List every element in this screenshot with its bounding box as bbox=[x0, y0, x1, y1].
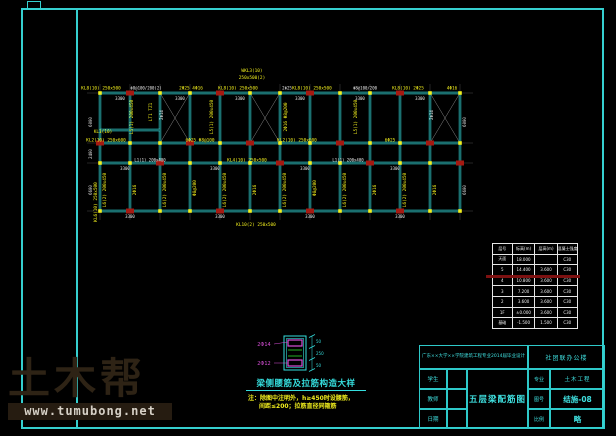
floor-table-cell: 1F bbox=[493, 307, 513, 318]
joint-node bbox=[98, 161, 102, 165]
detail-title: 梁侧腰筋及拉筋构造大样 bbox=[246, 377, 366, 391]
dimension-text: 6600 bbox=[88, 185, 93, 195]
floor-table-cell: 7.200 bbox=[512, 286, 535, 297]
beam-label: L6(2) 200x450 bbox=[162, 172, 168, 207]
beam-label: KL8(10) 2Φ25 bbox=[392, 86, 424, 92]
teacher-value-cell bbox=[447, 389, 467, 409]
floor-table-cell: 1.500 bbox=[535, 318, 557, 329]
column-marker bbox=[276, 161, 284, 166]
joint-node bbox=[368, 91, 372, 95]
dimension-text: 3300 bbox=[305, 214, 315, 219]
beam-label: 2Φ25 4Φ16 bbox=[179, 86, 203, 92]
sheet-number-value: 结施-08 bbox=[550, 389, 605, 409]
beam-label: 4Φ16 bbox=[447, 86, 458, 92]
floor-table-cell: C30 bbox=[557, 307, 577, 318]
bottom-rebar-label: 2Φ12 bbox=[257, 361, 270, 367]
joint-node bbox=[368, 141, 372, 145]
joint-node bbox=[428, 161, 432, 165]
dimension-text: 3300 bbox=[175, 96, 185, 101]
beam-label: LT1 TZ1 bbox=[148, 102, 154, 121]
date-value-cell bbox=[447, 409, 467, 429]
building-name: 社团联办公楼 bbox=[528, 345, 605, 369]
bottom-rebar bbox=[288, 360, 302, 366]
dimension-text: 2Φ25 bbox=[282, 86, 292, 91]
project-name: 广东××大学××学院建筑工程专业2014届毕业设计 bbox=[419, 345, 528, 369]
beam-label: L6(2) 200x450 bbox=[342, 172, 348, 207]
joint-node bbox=[458, 141, 462, 145]
floor-table-cell: 3.600 bbox=[535, 265, 557, 276]
scale-value: 略 bbox=[550, 409, 605, 429]
floor-table-cell: C30 bbox=[557, 254, 577, 265]
top-rebar-label: 2Φ14 bbox=[257, 342, 270, 348]
top-rebar bbox=[288, 340, 302, 346]
major-label: 专业 bbox=[528, 369, 550, 389]
joint-node bbox=[458, 91, 462, 95]
joint-node bbox=[278, 91, 282, 95]
student-value-cell bbox=[447, 369, 467, 389]
joint-node bbox=[218, 141, 222, 145]
floor-table-cell: C30 bbox=[557, 296, 577, 307]
sheet-number-label: 图号 bbox=[528, 389, 550, 409]
dimension-text: 3300 bbox=[115, 96, 125, 101]
dimension-text: 3300 bbox=[295, 96, 305, 101]
dim-value: 250 bbox=[316, 351, 324, 356]
beam-label: KL4(10) 250x500 bbox=[227, 158, 267, 164]
joint-node bbox=[158, 91, 162, 95]
dimension-text: 3300 bbox=[125, 214, 135, 219]
dimension-text: L1(1) 200x400 bbox=[332, 158, 364, 163]
dimension-text: Φ8@100/200 bbox=[353, 86, 378, 91]
floor-table-cell: 层号 bbox=[493, 244, 513, 255]
column-marker bbox=[426, 141, 434, 146]
beam-label: 2Φ16 bbox=[252, 184, 258, 195]
beam-label: 2Φ16 bbox=[132, 184, 138, 195]
floor-table-cell: 5 bbox=[493, 265, 513, 276]
dimension-text: 3300 bbox=[390, 166, 400, 171]
section-stirrup bbox=[287, 339, 304, 368]
floor-table-cell: 层高(m) bbox=[535, 244, 557, 255]
rebar-leader bbox=[274, 342, 288, 344]
floor-table-cell: C30 bbox=[557, 286, 577, 297]
joint-node bbox=[428, 91, 432, 95]
column-marker bbox=[366, 161, 374, 166]
dimension-text: 2400 bbox=[88, 149, 93, 159]
joint-node bbox=[338, 209, 342, 213]
date-label: 日期 bbox=[419, 409, 447, 429]
joint-node bbox=[158, 209, 162, 213]
detail-note-line2: 间距≤200；拉筋直径同箍筋 bbox=[259, 401, 337, 410]
beam-label: 6Φ25 Φ8@100 bbox=[185, 138, 214, 144]
beam-label: KL10(2) 250x500 bbox=[236, 222, 276, 228]
beam-label: L6(2) 200x450 bbox=[102, 172, 108, 207]
floor-table-cell: 2 bbox=[493, 296, 513, 307]
beam-label: 6Φ25 bbox=[385, 138, 396, 144]
joint-node bbox=[398, 141, 402, 145]
joint-node bbox=[188, 209, 192, 213]
beam-label: L5(1) 200x450 bbox=[353, 99, 359, 134]
floor-table-cell: 混凝土强度 bbox=[557, 244, 577, 255]
dimension-text: 6000 bbox=[88, 117, 93, 127]
joint-node bbox=[188, 161, 192, 165]
student-label: 学生 bbox=[419, 369, 447, 389]
dimension-text: 2Φ14 bbox=[429, 110, 434, 120]
beam-label: KL8(10) 250x500 bbox=[292, 86, 332, 92]
beam-label: L5(1) 200x450 bbox=[129, 99, 135, 134]
joint-node bbox=[158, 141, 162, 145]
floor-table-cell: 3.600 bbox=[512, 296, 535, 307]
watermark-url: www.tumubong.net bbox=[8, 403, 172, 420]
dim-value: 50 bbox=[316, 363, 322, 368]
beam-label: 250x500(2) bbox=[239, 75, 265, 81]
column-marker bbox=[456, 161, 464, 166]
joint-node bbox=[98, 91, 102, 95]
dimension-text: 3300 bbox=[355, 96, 365, 101]
cad-drawing-sheet: KL8(10) 250x500Φ8@100/200(2)2Φ25 4Φ16KL8… bbox=[0, 0, 616, 436]
beam-label: KL8(10) 250x500 bbox=[218, 86, 258, 92]
dimension-text: 3300 bbox=[415, 96, 425, 101]
joint-node bbox=[278, 209, 282, 213]
dimension-text: 3300 bbox=[300, 166, 310, 171]
beam-label: L6(2) 200x450 bbox=[222, 172, 228, 207]
dimension-text: Φ8@100/200(2) bbox=[130, 86, 161, 91]
dimension-text: 6000 bbox=[462, 117, 467, 127]
floor-elevation-table: 层号标高(m)层高(m)混凝土强度天面18.000C30514.4003.600… bbox=[492, 243, 578, 329]
dimension-text: 3300 bbox=[120, 166, 130, 171]
floor-table-cell bbox=[535, 254, 557, 265]
dimension-text: 2Φ14 bbox=[159, 110, 164, 120]
joint-node bbox=[428, 209, 432, 213]
floor-table-cell: ±0.000 bbox=[512, 307, 535, 318]
floor-table-cell: 3.600 bbox=[535, 296, 557, 307]
dimension-text: 3300 bbox=[215, 214, 225, 219]
floor-table-cell: 3.600 bbox=[535, 286, 557, 297]
joint-node bbox=[128, 141, 132, 145]
beam-label: L6(2) 200x450 bbox=[402, 172, 408, 207]
beam-label: 2Φ16 Φ8@200 bbox=[283, 102, 289, 131]
watermark: 土木帮 www.tumubong.net bbox=[8, 356, 172, 420]
column-marker bbox=[396, 209, 404, 214]
floor-table-cell: 14.400 bbox=[512, 265, 535, 276]
column-marker bbox=[246, 141, 254, 146]
scale-label: 比例 bbox=[528, 409, 550, 429]
floor-table-cell: -1.500 bbox=[512, 318, 535, 329]
beam-label: KL1(10) bbox=[94, 129, 113, 135]
beam-label: Φ8@200 bbox=[192, 180, 198, 196]
beam-label: 2Φ16 bbox=[432, 184, 438, 195]
drawing-title: 五层梁配筋图 bbox=[467, 369, 528, 429]
floor-table-cell: C30 bbox=[557, 318, 577, 329]
watermark-brand: 土木帮 bbox=[8, 356, 172, 402]
beam-label: WKL3(10) bbox=[241, 68, 262, 74]
column-marker bbox=[126, 209, 134, 214]
beam-label: KL2(10) 250x600 bbox=[86, 138, 126, 144]
beam-label: KL2(10) 250x600 bbox=[277, 138, 317, 144]
column-marker bbox=[216, 209, 224, 214]
joint-node bbox=[308, 161, 312, 165]
joint-node bbox=[248, 209, 252, 213]
joint-node bbox=[218, 161, 222, 165]
column-marker bbox=[126, 91, 134, 96]
beam-label: L6(2) 200x450 bbox=[282, 172, 288, 207]
floor-table-cell: 标高(m) bbox=[512, 244, 535, 255]
beam-label: L5(1) 200x450 bbox=[209, 99, 215, 134]
column-marker bbox=[336, 141, 344, 146]
joint-node bbox=[248, 91, 252, 95]
floor-table-grid: 层号标高(m)层高(m)混凝土强度天面18.000C30514.4003.600… bbox=[492, 243, 578, 329]
teacher-label: 教师 bbox=[419, 389, 447, 409]
joint-node bbox=[128, 161, 132, 165]
dimension-text: 3300 bbox=[235, 96, 245, 101]
dimension-text: 6600 bbox=[462, 185, 467, 195]
beam-label: Φ8@200 bbox=[312, 180, 318, 196]
title-block: 广东××大学××学院建筑工程专业2014届毕业设计 社团联办公楼 学生 教师 日… bbox=[419, 345, 605, 429]
floor-table-cell: C30 bbox=[557, 265, 577, 276]
joint-node bbox=[338, 91, 342, 95]
dimension-text: 3300 bbox=[395, 214, 405, 219]
beam-label: 2Φ16 bbox=[372, 184, 378, 195]
floor-table-cell: 18.000 bbox=[512, 254, 535, 265]
joint-node bbox=[368, 209, 372, 213]
beam-label: KL6(10) 250x500 bbox=[93, 182, 99, 222]
dim-value: 50 bbox=[316, 339, 322, 344]
section-outline bbox=[284, 336, 306, 370]
dimension-text: 3300 bbox=[210, 166, 220, 171]
joint-node bbox=[188, 91, 192, 95]
joint-node bbox=[458, 209, 462, 213]
floor-table-cell: 3.600 bbox=[535, 307, 557, 318]
joint-node bbox=[398, 161, 402, 165]
red-strike-line bbox=[486, 275, 580, 278]
floor-table-cell: 天面 bbox=[493, 254, 513, 265]
column-marker bbox=[306, 209, 314, 214]
floor-table-cell: 基础 bbox=[493, 318, 513, 329]
major-value: 土木工程 bbox=[550, 369, 605, 389]
dimension-text: L1(1) 200x400 bbox=[134, 158, 166, 163]
beam-label: KL8(10) 250x500 bbox=[81, 86, 121, 92]
floor-table-cell: 3 bbox=[493, 286, 513, 297]
